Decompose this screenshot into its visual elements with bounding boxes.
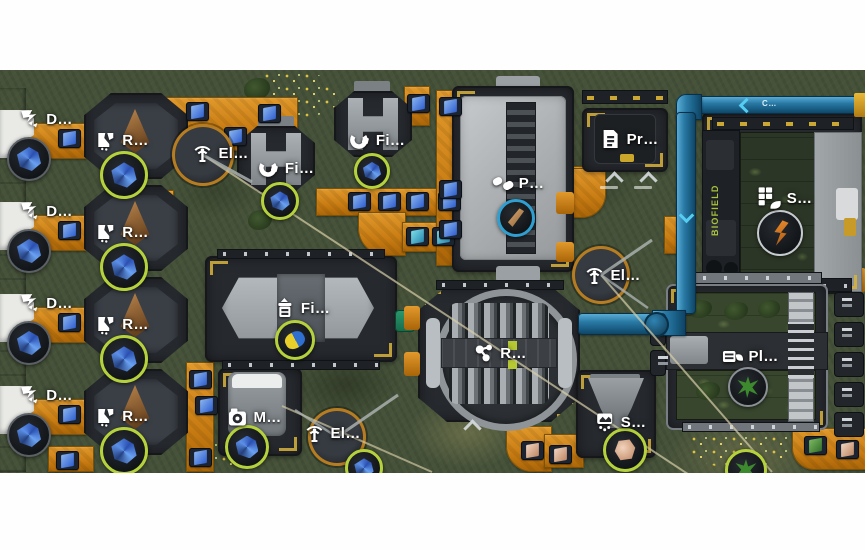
belt-stub	[556, 192, 574, 214]
blue-crystal-item	[270, 191, 289, 210]
power-pole-label-text: El…	[330, 426, 360, 441]
side-module	[834, 292, 864, 317]
item-badge[interactable]	[757, 210, 803, 256]
ember-plant-item	[767, 220, 792, 245]
power-pole-icon	[583, 264, 605, 286]
bio-unit	[836, 188, 858, 220]
power-pole-label[interactable]: El…	[583, 264, 640, 286]
power-pole-label[interactable]: El…	[303, 422, 360, 444]
blue-crystal-item	[17, 423, 41, 447]
belt-item	[804, 436, 827, 455]
miner-hood	[232, 374, 282, 388]
belt-item	[836, 440, 859, 459]
belt-item	[186, 102, 209, 121]
item-badge[interactable]	[261, 182, 299, 220]
refiner-label-text: R…	[122, 409, 148, 424]
item-badge[interactable]	[100, 427, 148, 473]
belt-item	[189, 370, 212, 389]
pipe-joint	[644, 312, 669, 337]
belt-item	[406, 192, 429, 211]
refiner-label-text: R…	[122, 225, 148, 240]
item-badge[interactable]	[7, 321, 51, 365]
item-badge[interactable]	[225, 425, 269, 469]
reactor-label-text: R…	[500, 346, 526, 361]
item-badge[interactable]	[728, 367, 768, 407]
bio-battery	[844, 218, 856, 236]
side-module	[834, 352, 864, 377]
printer-label-text: Pr…	[627, 132, 659, 147]
belt-item	[407, 94, 430, 113]
smelter-label-text: Fi…	[376, 133, 405, 148]
port-row	[676, 272, 822, 284]
port-row	[582, 90, 668, 104]
belt-stub	[404, 306, 420, 330]
pipe-tag: C…	[762, 99, 777, 108]
side-module	[650, 350, 666, 376]
side-module	[834, 382, 864, 407]
sifter-icon	[594, 411, 616, 433]
belt-item	[378, 192, 401, 211]
refiner-icon	[95, 405, 117, 427]
miner-label-text: M…	[253, 410, 281, 425]
belt-item	[439, 97, 462, 116]
sifter-label[interactable]: S…	[594, 411, 647, 433]
metal-rod-item	[506, 208, 525, 227]
factory-label[interactable]: Fi…	[274, 297, 330, 319]
planter-label[interactable]: Pl…	[721, 345, 778, 367]
port-caption	[600, 186, 618, 189]
press-icon	[492, 172, 514, 194]
planter-column-belt	[788, 322, 814, 378]
item-badge[interactable]	[603, 428, 647, 472]
smelter-label[interactable]: Fi…	[349, 129, 405, 151]
item-badge[interactable]	[7, 413, 51, 457]
rock-item	[614, 439, 637, 462]
press-label-text: P…	[519, 176, 545, 191]
refiner-icon	[95, 129, 117, 151]
refiner-label-text: R…	[122, 317, 148, 332]
reactor-cap	[558, 318, 572, 388]
bottom-margin	[0, 473, 865, 550]
miner-icon	[226, 406, 248, 428]
refiner-label[interactable]: R…	[95, 313, 148, 335]
power-pole-icon	[191, 142, 213, 164]
item-badge[interactable]	[354, 153, 390, 189]
pipe-valve	[854, 93, 865, 117]
reactor-label[interactable]: R…	[473, 342, 526, 364]
belt-item	[549, 445, 572, 464]
blue-crystal-item	[17, 239, 41, 263]
refiner-icon	[95, 221, 117, 243]
belt-item	[439, 220, 462, 239]
drill-icon	[19, 200, 41, 222]
drill-label[interactable]: D…	[19, 108, 72, 130]
belt-item	[258, 104, 281, 123]
refiner-icon	[95, 313, 117, 335]
solar-leaf-icon	[756, 185, 782, 211]
blue-crystal-item	[111, 438, 136, 463]
miner-label[interactable]: M…	[226, 406, 281, 428]
smelter-icon	[349, 129, 371, 151]
belt-item	[56, 451, 79, 470]
reactor-cap	[426, 318, 440, 388]
blue-crystal-item	[354, 458, 373, 473]
item-badge[interactable]	[100, 335, 148, 383]
screenshot-root: D… R… D… R… D… R… D… R…	[0, 0, 865, 550]
drill-label-text: D…	[46, 112, 72, 127]
drill-label-text: D…	[46, 204, 72, 219]
drill-label[interactable]: D…	[19, 200, 72, 222]
port-row	[222, 360, 380, 370]
bio-generator-label[interactable]: S…	[756, 185, 813, 211]
molecule-icon	[473, 342, 495, 364]
fluid-pipe	[694, 96, 860, 114]
power-pole-label[interactable]: El…	[191, 142, 248, 164]
belt-item	[521, 441, 544, 460]
item-badge[interactable]	[275, 320, 315, 360]
planter-icon	[721, 345, 743, 367]
drill-label-text: D…	[46, 296, 72, 311]
blue-crystal-item	[363, 162, 381, 180]
blue-crystal-item	[111, 254, 136, 279]
port-row	[217, 249, 385, 259]
blue-crystal-item	[236, 436, 259, 459]
top-margin	[0, 0, 865, 70]
smelter-icon	[258, 157, 280, 179]
port-caption	[634, 186, 652, 189]
belt-item	[439, 180, 462, 199]
power-pole-label-text: El…	[610, 268, 640, 283]
belt-item	[195, 396, 218, 415]
item-badge[interactable]	[497, 199, 535, 237]
game-map-viewport[interactable]: D… R… D… R… D… R… D… R…	[0, 70, 865, 473]
conveyor-belt-turn	[570, 168, 606, 218]
refiner-label[interactable]: R…	[95, 129, 148, 151]
item-badge[interactable]	[7, 137, 51, 181]
drill-icon	[19, 384, 41, 406]
item-badge[interactable]	[345, 449, 383, 473]
printer-label[interactable]: Pr…	[600, 128, 659, 150]
capsule-item	[282, 328, 308, 352]
reactor-cylinders	[449, 366, 549, 404]
refiner-label[interactable]: R…	[95, 221, 148, 243]
belt-item	[58, 129, 81, 148]
drill-label[interactable]: D…	[19, 292, 72, 314]
item-badge[interactable]	[100, 243, 148, 291]
power-pole-icon	[303, 422, 325, 444]
green-plant-item	[737, 376, 759, 398]
belt-item	[58, 221, 81, 240]
blue-crystal-item	[17, 147, 41, 171]
power-pole-label-text: El…	[218, 146, 248, 161]
planter-cart	[670, 336, 708, 364]
belt-item	[189, 448, 212, 467]
drill-icon	[19, 292, 41, 314]
port-row	[682, 422, 820, 432]
smelter-label[interactable]: Fi…	[258, 157, 314, 179]
belt-item	[58, 313, 81, 332]
factory-label-text: Fi…	[301, 301, 330, 316]
blue-crystal-item	[111, 346, 136, 371]
factory-icon	[274, 297, 296, 319]
belt-item	[348, 192, 371, 211]
belt-item	[58, 405, 81, 424]
printer-icon	[600, 128, 622, 150]
item-badge[interactable]	[100, 151, 148, 199]
drill-label-text: D…	[46, 388, 72, 403]
side-module	[834, 322, 864, 347]
smelter-label-text: Fi…	[285, 161, 314, 176]
port-row	[712, 117, 854, 130]
refiner-label-text: R…	[122, 133, 148, 148]
press-label[interactable]: P…	[492, 172, 545, 194]
side-module	[834, 412, 864, 437]
reactor-cylinders	[449, 303, 549, 341]
item-badge[interactable]	[7, 229, 51, 273]
drill-label[interactable]: D…	[19, 384, 72, 406]
sifter-label-text: S…	[621, 415, 647, 430]
drill-icon	[19, 108, 41, 130]
belt-stub	[556, 242, 574, 262]
green-plant-item	[735, 459, 757, 473]
biofield-sign: BIOFIELD	[710, 164, 720, 236]
belt-stub	[404, 352, 420, 376]
bio-generator-label-text: S…	[787, 191, 813, 206]
blue-crystal-item	[111, 162, 136, 187]
refiner-label[interactable]: R…	[95, 405, 148, 427]
belt-item	[406, 227, 429, 246]
planter-label-text: Pl…	[748, 349, 778, 364]
printer-light	[620, 154, 634, 162]
blue-crystal-item	[17, 331, 41, 355]
